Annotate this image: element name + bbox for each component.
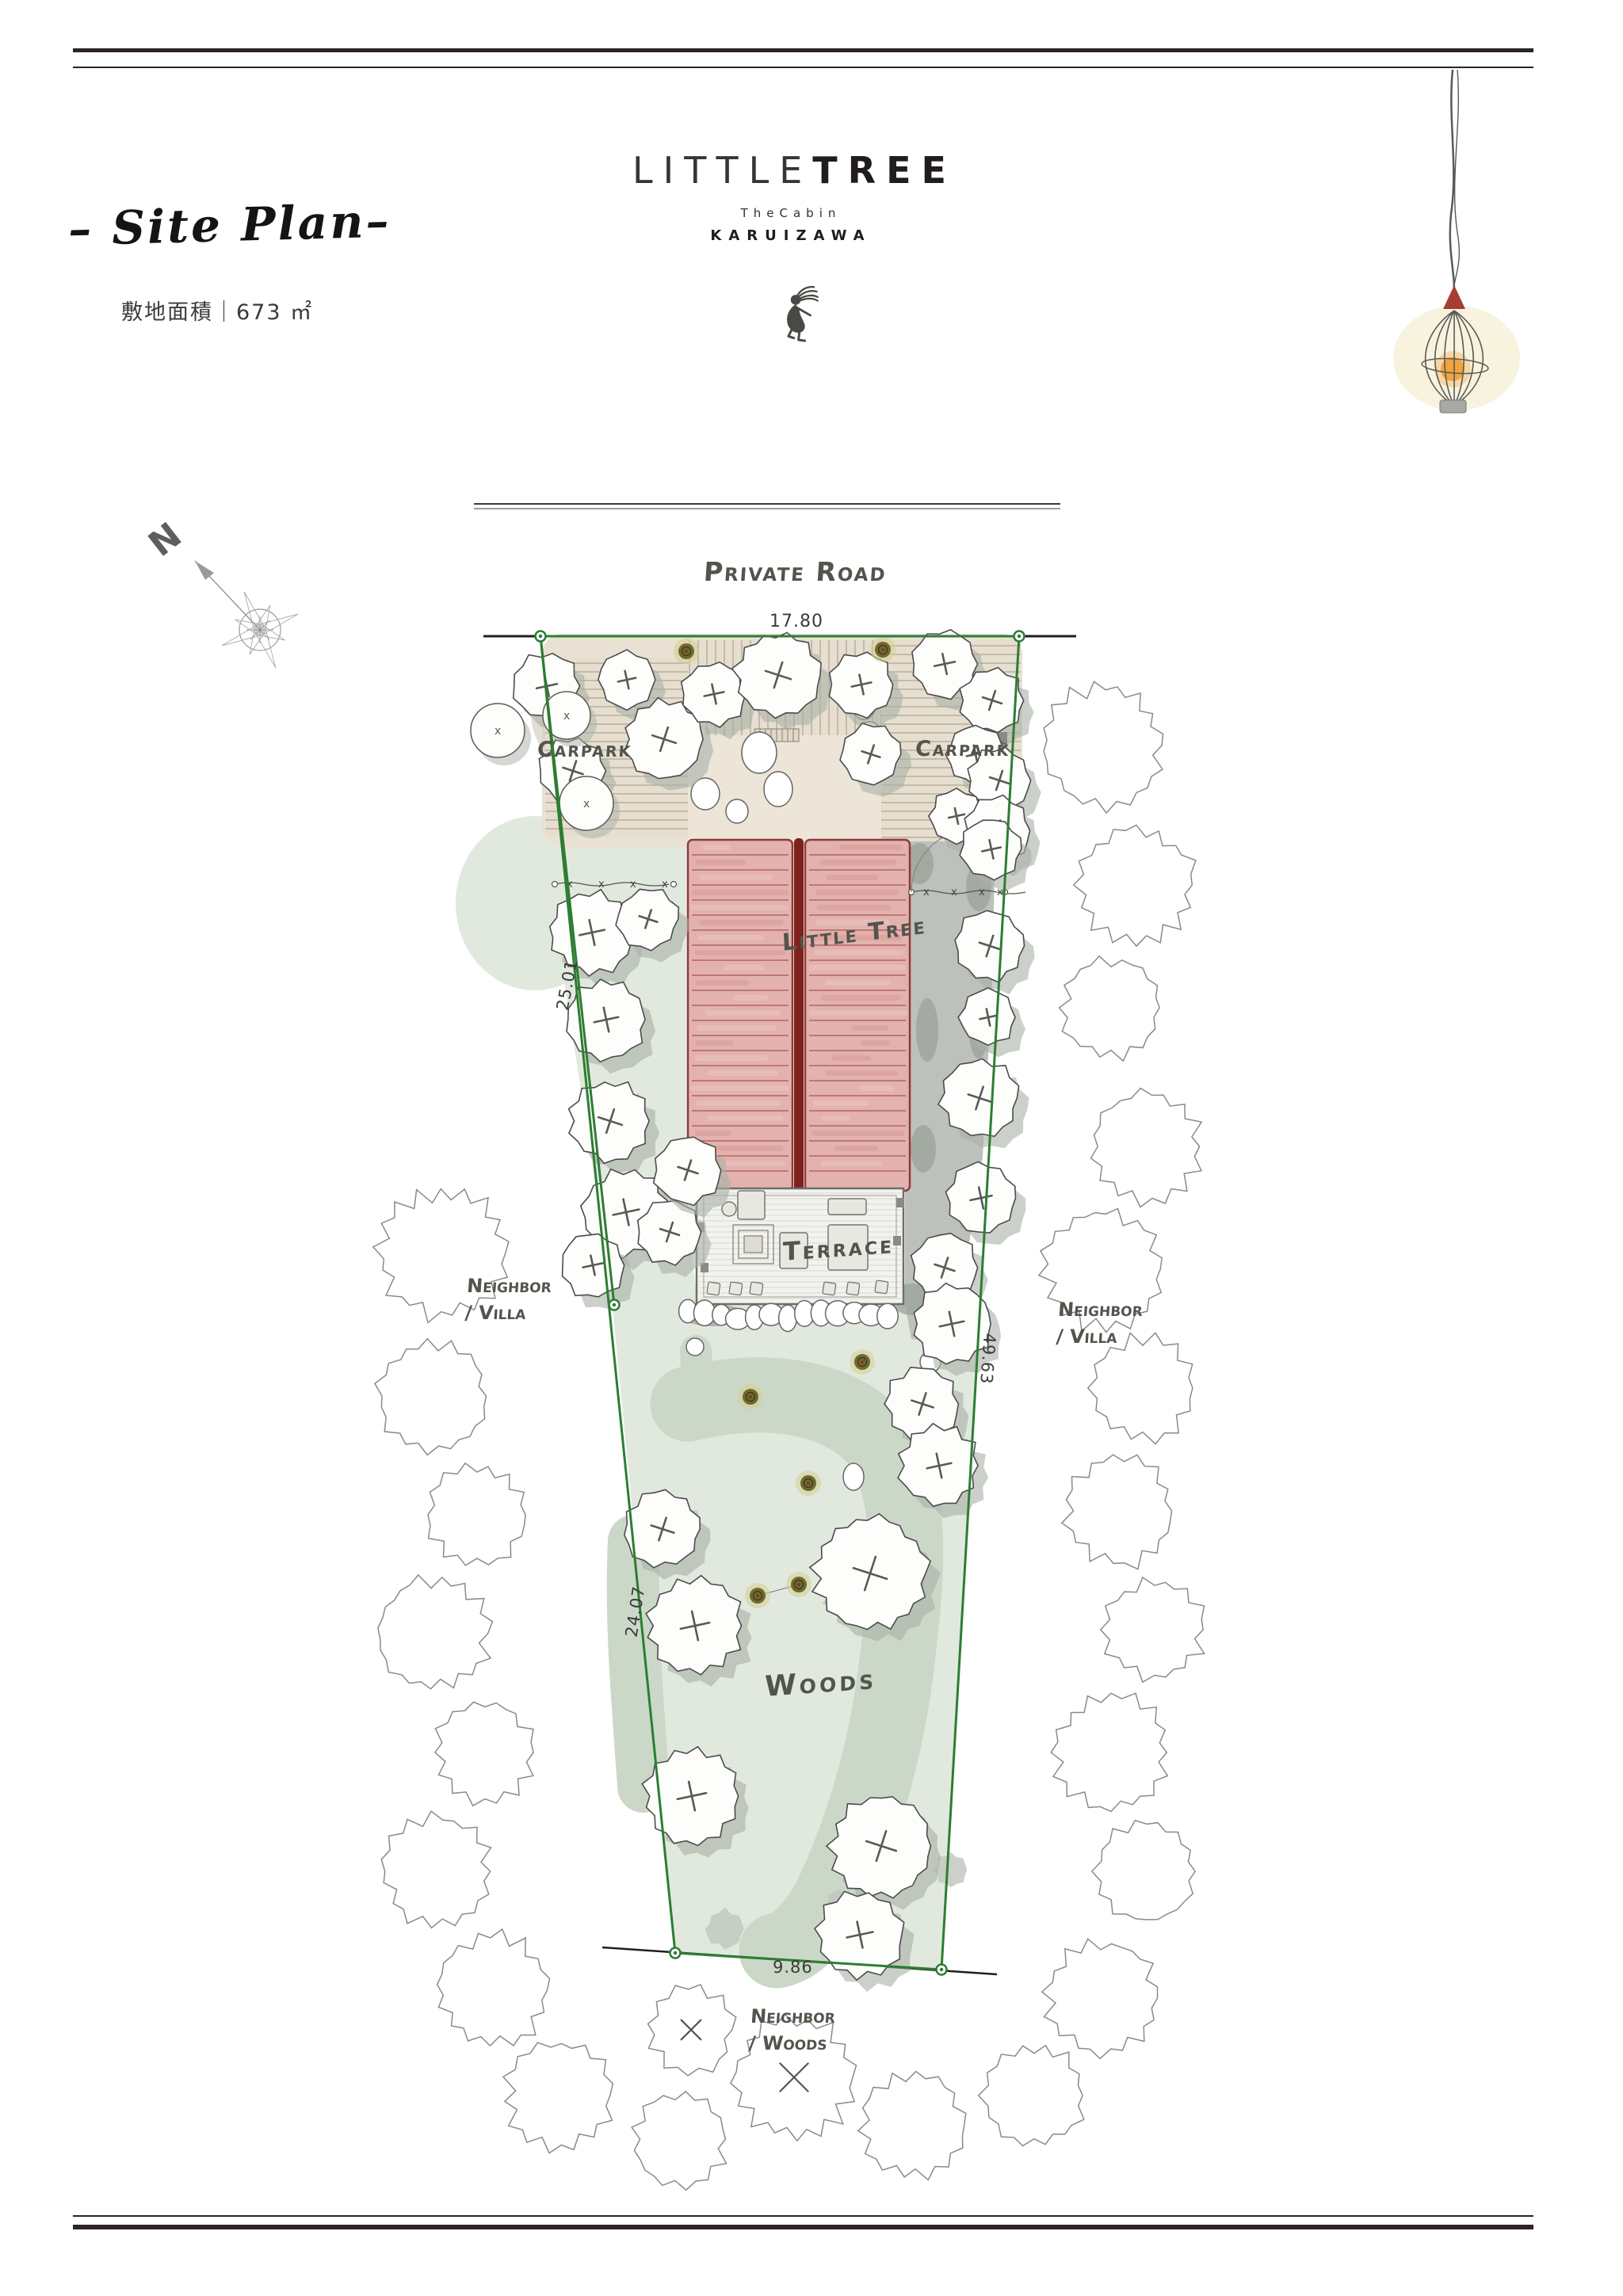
- dimension-top: 17.80: [769, 612, 823, 631]
- brand-logo-light: LITTLE: [632, 149, 812, 192]
- tree-outline: [632, 2092, 726, 2190]
- dimension-bottom: 9.86: [773, 1958, 813, 1977]
- brand-logo: LITTLETREE: [632, 149, 949, 192]
- site-area-separator: ｜: [213, 300, 236, 325]
- lamp-base: [1440, 400, 1466, 413]
- pendant-lamp-illustration: [1393, 70, 1520, 413]
- svg-text:x: x: [583, 798, 590, 810]
- dimension-right: 49.63: [976, 1333, 999, 1386]
- svg-text:x: x: [662, 879, 668, 891]
- brand-location: KARUIZAWA: [632, 227, 949, 244]
- label-neighbor-woods-line1: Neighbor: [750, 2003, 836, 2030]
- label-neighbor-villa-left: Neighbor / Villa: [464, 1272, 552, 1326]
- label-neighbor-woods-line2: / Woods: [748, 2030, 834, 2057]
- svg-text:x: x: [951, 887, 957, 898]
- site-plan-sheet: xxxxxxxxxxx – Site Plan– 敷地面積｜673 ㎡ LITT…: [0, 0, 1623, 2296]
- road-edge-lines: [474, 504, 1060, 509]
- site-area-label: 敷地面積: [121, 300, 213, 325]
- svg-text:x: x: [979, 887, 985, 898]
- tree-outline: [378, 1575, 493, 1689]
- label-neighbor-villa-left-line2: / Villa: [464, 1299, 551, 1326]
- tree-outline: [979, 2046, 1084, 2146]
- tree-outline: [1101, 1577, 1205, 1682]
- kokopelli-icon: [787, 287, 818, 341]
- label-neighbor-woods: Neighbor / Woods: [748, 2003, 836, 2057]
- tree-outline: [435, 1702, 533, 1806]
- tree-outline: [1042, 1939, 1158, 2058]
- compass-icon: [195, 561, 298, 668]
- label-neighbor-villa-right-line1: Neighbor: [1057, 1296, 1144, 1323]
- tree-outline: [375, 1339, 487, 1455]
- cabin-roof: [688, 838, 910, 1192]
- tree-outline: [1091, 1089, 1202, 1207]
- label-carpark-left: Carpark: [537, 738, 633, 762]
- tree-outline: [503, 2042, 613, 2153]
- svg-text:x: x: [630, 879, 636, 891]
- plan-canvas: xxxxxxxxxxx: [0, 0, 1623, 2296]
- tree-outline: [1051, 1693, 1167, 1811]
- label-neighbor-villa-right-line2: / Villa: [1056, 1323, 1142, 1350]
- label-neighbor-villa-left-line1: Neighbor: [466, 1272, 552, 1299]
- svg-text:x: x: [598, 879, 605, 891]
- tree-outline: [1044, 681, 1163, 813]
- tree-outline: [428, 1463, 525, 1566]
- tree-outline: [1060, 956, 1160, 1061]
- svg-text:x: x: [563, 710, 570, 723]
- label-private-road: Private Road: [703, 556, 888, 587]
- tree-outline: [1062, 1455, 1172, 1569]
- brand-logo-bold: TREE: [812, 149, 957, 192]
- svg-text:x: x: [923, 887, 930, 898]
- label-neighbor-villa-right: Neighbor / Villa: [1056, 1296, 1144, 1350]
- tree-outline: [858, 2072, 966, 2180]
- brand-subtitle: TheCabin: [632, 206, 949, 220]
- lamp-cone: [1443, 285, 1465, 309]
- tree-outline: [381, 1811, 491, 1928]
- tree-outline: [437, 1929, 550, 2046]
- page-title: – Site Plan–: [67, 194, 391, 257]
- site-area-text: 敷地面積｜673 ㎡: [121, 295, 313, 326]
- tree-outline: [1074, 825, 1196, 946]
- svg-text:x: x: [495, 725, 501, 738]
- label-carpark-right: Carpark: [915, 737, 1011, 761]
- tree-outline: [1092, 1821, 1195, 1920]
- site-area-value: 673 ㎡: [236, 300, 313, 325]
